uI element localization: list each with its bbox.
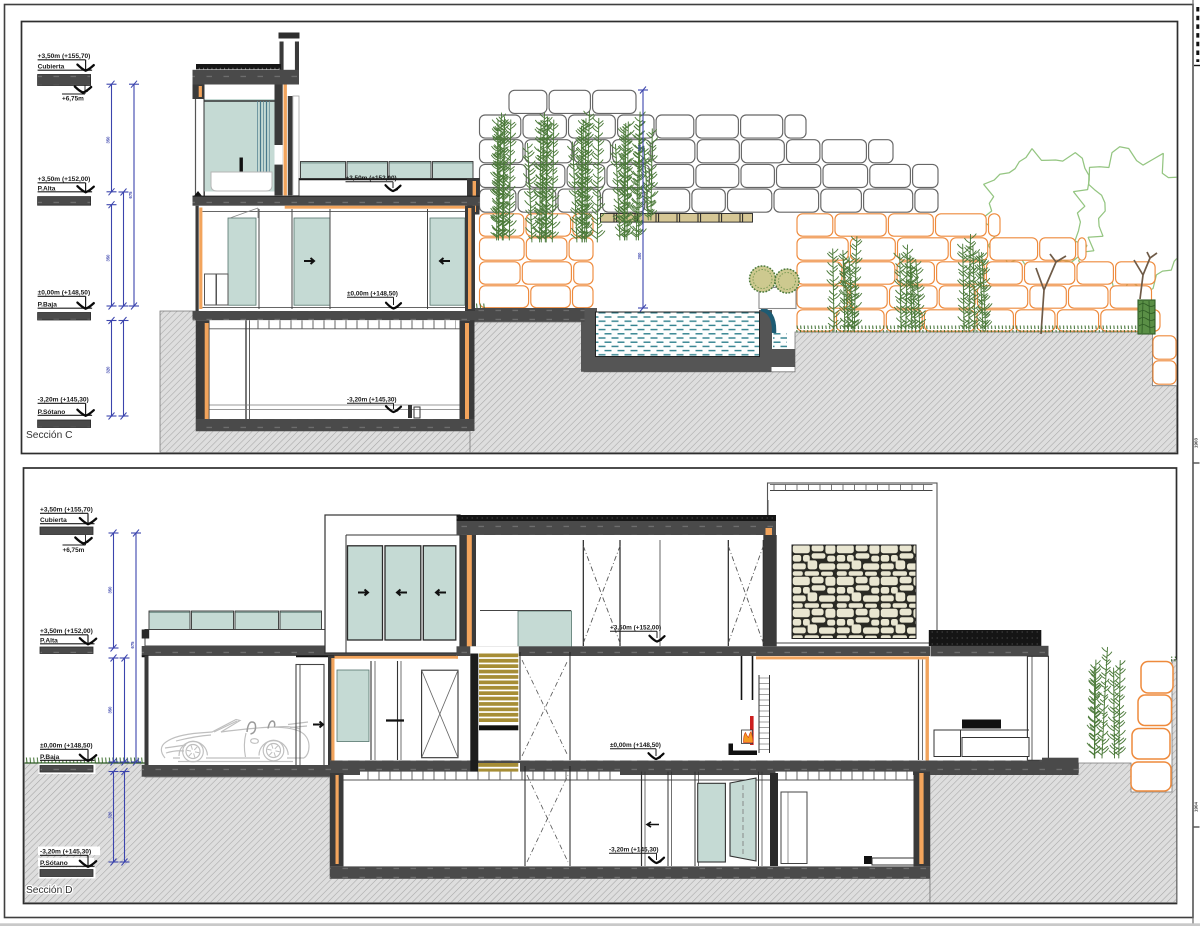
svg-text:-3,20m (+145,30): -3,20m (+145,30)	[38, 397, 89, 404]
svg-text:300: 300	[637, 252, 642, 260]
svg-text:+6,75m: +6,75m	[62, 96, 84, 103]
svg-text:+3,50m (+152,00): +3,50m (+152,00)	[346, 175, 397, 182]
svg-text:+6,75m: +6,75m	[63, 547, 85, 554]
svg-text:320: 320	[106, 366, 111, 374]
svg-text:350: 350	[106, 136, 111, 144]
svg-text:675: 675	[128, 191, 133, 199]
svg-text:+3,50m (+155,70): +3,50m (+155,70)	[40, 507, 93, 514]
svg-text:Cubierta: Cubierta	[38, 64, 65, 71]
svg-text:1903: 1903	[1193, 437, 1198, 448]
svg-text:300: 300	[637, 144, 642, 152]
svg-text:±0,00m (+148,50): ±0,00m (+148,50)	[40, 743, 93, 750]
svg-text:675: 675	[130, 641, 135, 649]
svg-text:+3,50m (+152,00): +3,50m (+152,00)	[40, 628, 93, 635]
svg-text:320: 320	[108, 811, 113, 819]
svg-text:-3,20m (+145,30): -3,20m (+145,30)	[609, 847, 659, 854]
svg-text:-3,20m (+145,30): -3,20m (+145,30)	[347, 397, 397, 404]
svg-text:350: 350	[108, 706, 113, 714]
svg-text:+3,50m (+152,00): +3,50m (+152,00)	[610, 625, 661, 632]
svg-text:Sección C: Sección C	[26, 430, 72, 441]
svg-text:+3,50m (+152,00): +3,50m (+152,00)	[38, 176, 91, 183]
svg-text:Cubierta: Cubierta	[40, 517, 67, 524]
svg-text:350: 350	[108, 586, 113, 594]
svg-text:-3,20m (+145,30): -3,20m (+145,30)	[40, 849, 91, 856]
svg-text:350: 350	[106, 254, 111, 262]
svg-text:±0,00m (+148,50): ±0,00m (+148,50)	[38, 290, 91, 297]
svg-text:±0,00m (+148,50): ±0,00m (+148,50)	[610, 742, 661, 749]
svg-text:Sección D: Sección D	[26, 885, 72, 896]
svg-text:1904: 1904	[1193, 801, 1198, 812]
svg-text:±0,00m (+148,50): ±0,00m (+148,50)	[347, 291, 398, 298]
svg-text:+3,50m (+155,70): +3,50m (+155,70)	[38, 53, 91, 60]
